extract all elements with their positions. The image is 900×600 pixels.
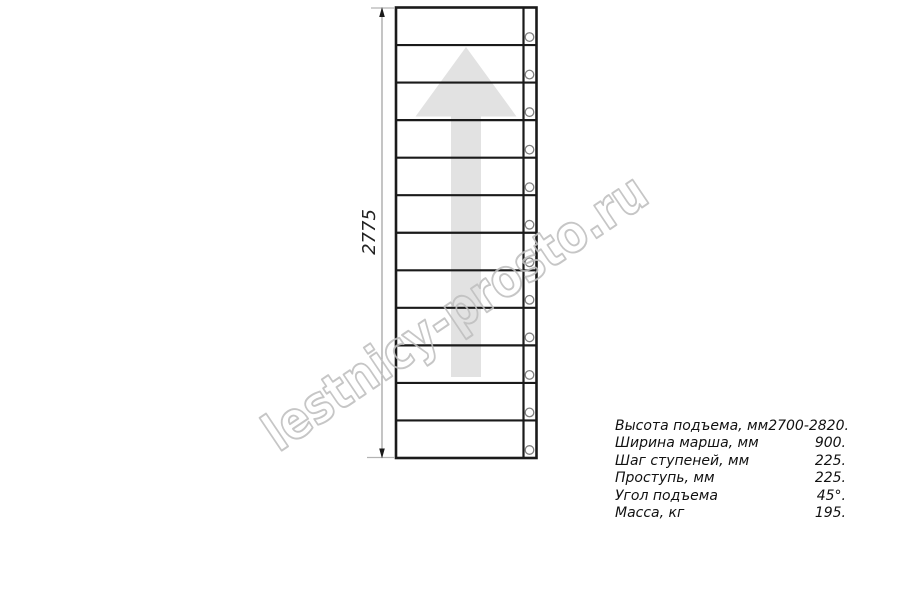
- spec-value: 225.: [815, 453, 846, 470]
- spec-row-step: Шаг ступеней, мм 225.: [615, 453, 846, 470]
- spec-value: 45°.: [817, 488, 846, 505]
- spec-label: Ширина марша, мм: [615, 435, 759, 452]
- spec-label: Шаг ступеней, мм: [615, 453, 749, 470]
- spec-row-mass: Масса, кг 195.: [615, 505, 846, 522]
- spec-row-width: Ширина марша, мм 900.: [615, 435, 846, 452]
- page: 2775 lestnicy-prosto.ru Высота подъема, …: [0, 0, 900, 600]
- spec-label: Проступь, мм: [615, 470, 715, 487]
- spec-label: Угол подъема: [615, 488, 718, 505]
- spec-row-height: Высота подъема, мм 2700-2820.: [615, 418, 846, 435]
- spec-value: 195.: [815, 505, 846, 522]
- spec-row-tread: Проступь, мм 225.: [615, 470, 846, 487]
- specs-table: Высота подъема, мм 2700-2820. Ширина мар…: [615, 418, 846, 522]
- spec-row-angle: Угол подъема 45°.: [615, 488, 846, 505]
- spec-value: 900.: [815, 435, 846, 452]
- spec-value: 225.: [815, 470, 846, 487]
- spec-label: Высота подъема, мм: [615, 418, 768, 435]
- spec-value: 2700-2820.: [768, 418, 849, 435]
- spec-label: Масса, кг: [615, 505, 684, 522]
- dimension-label: 2775: [359, 209, 380, 255]
